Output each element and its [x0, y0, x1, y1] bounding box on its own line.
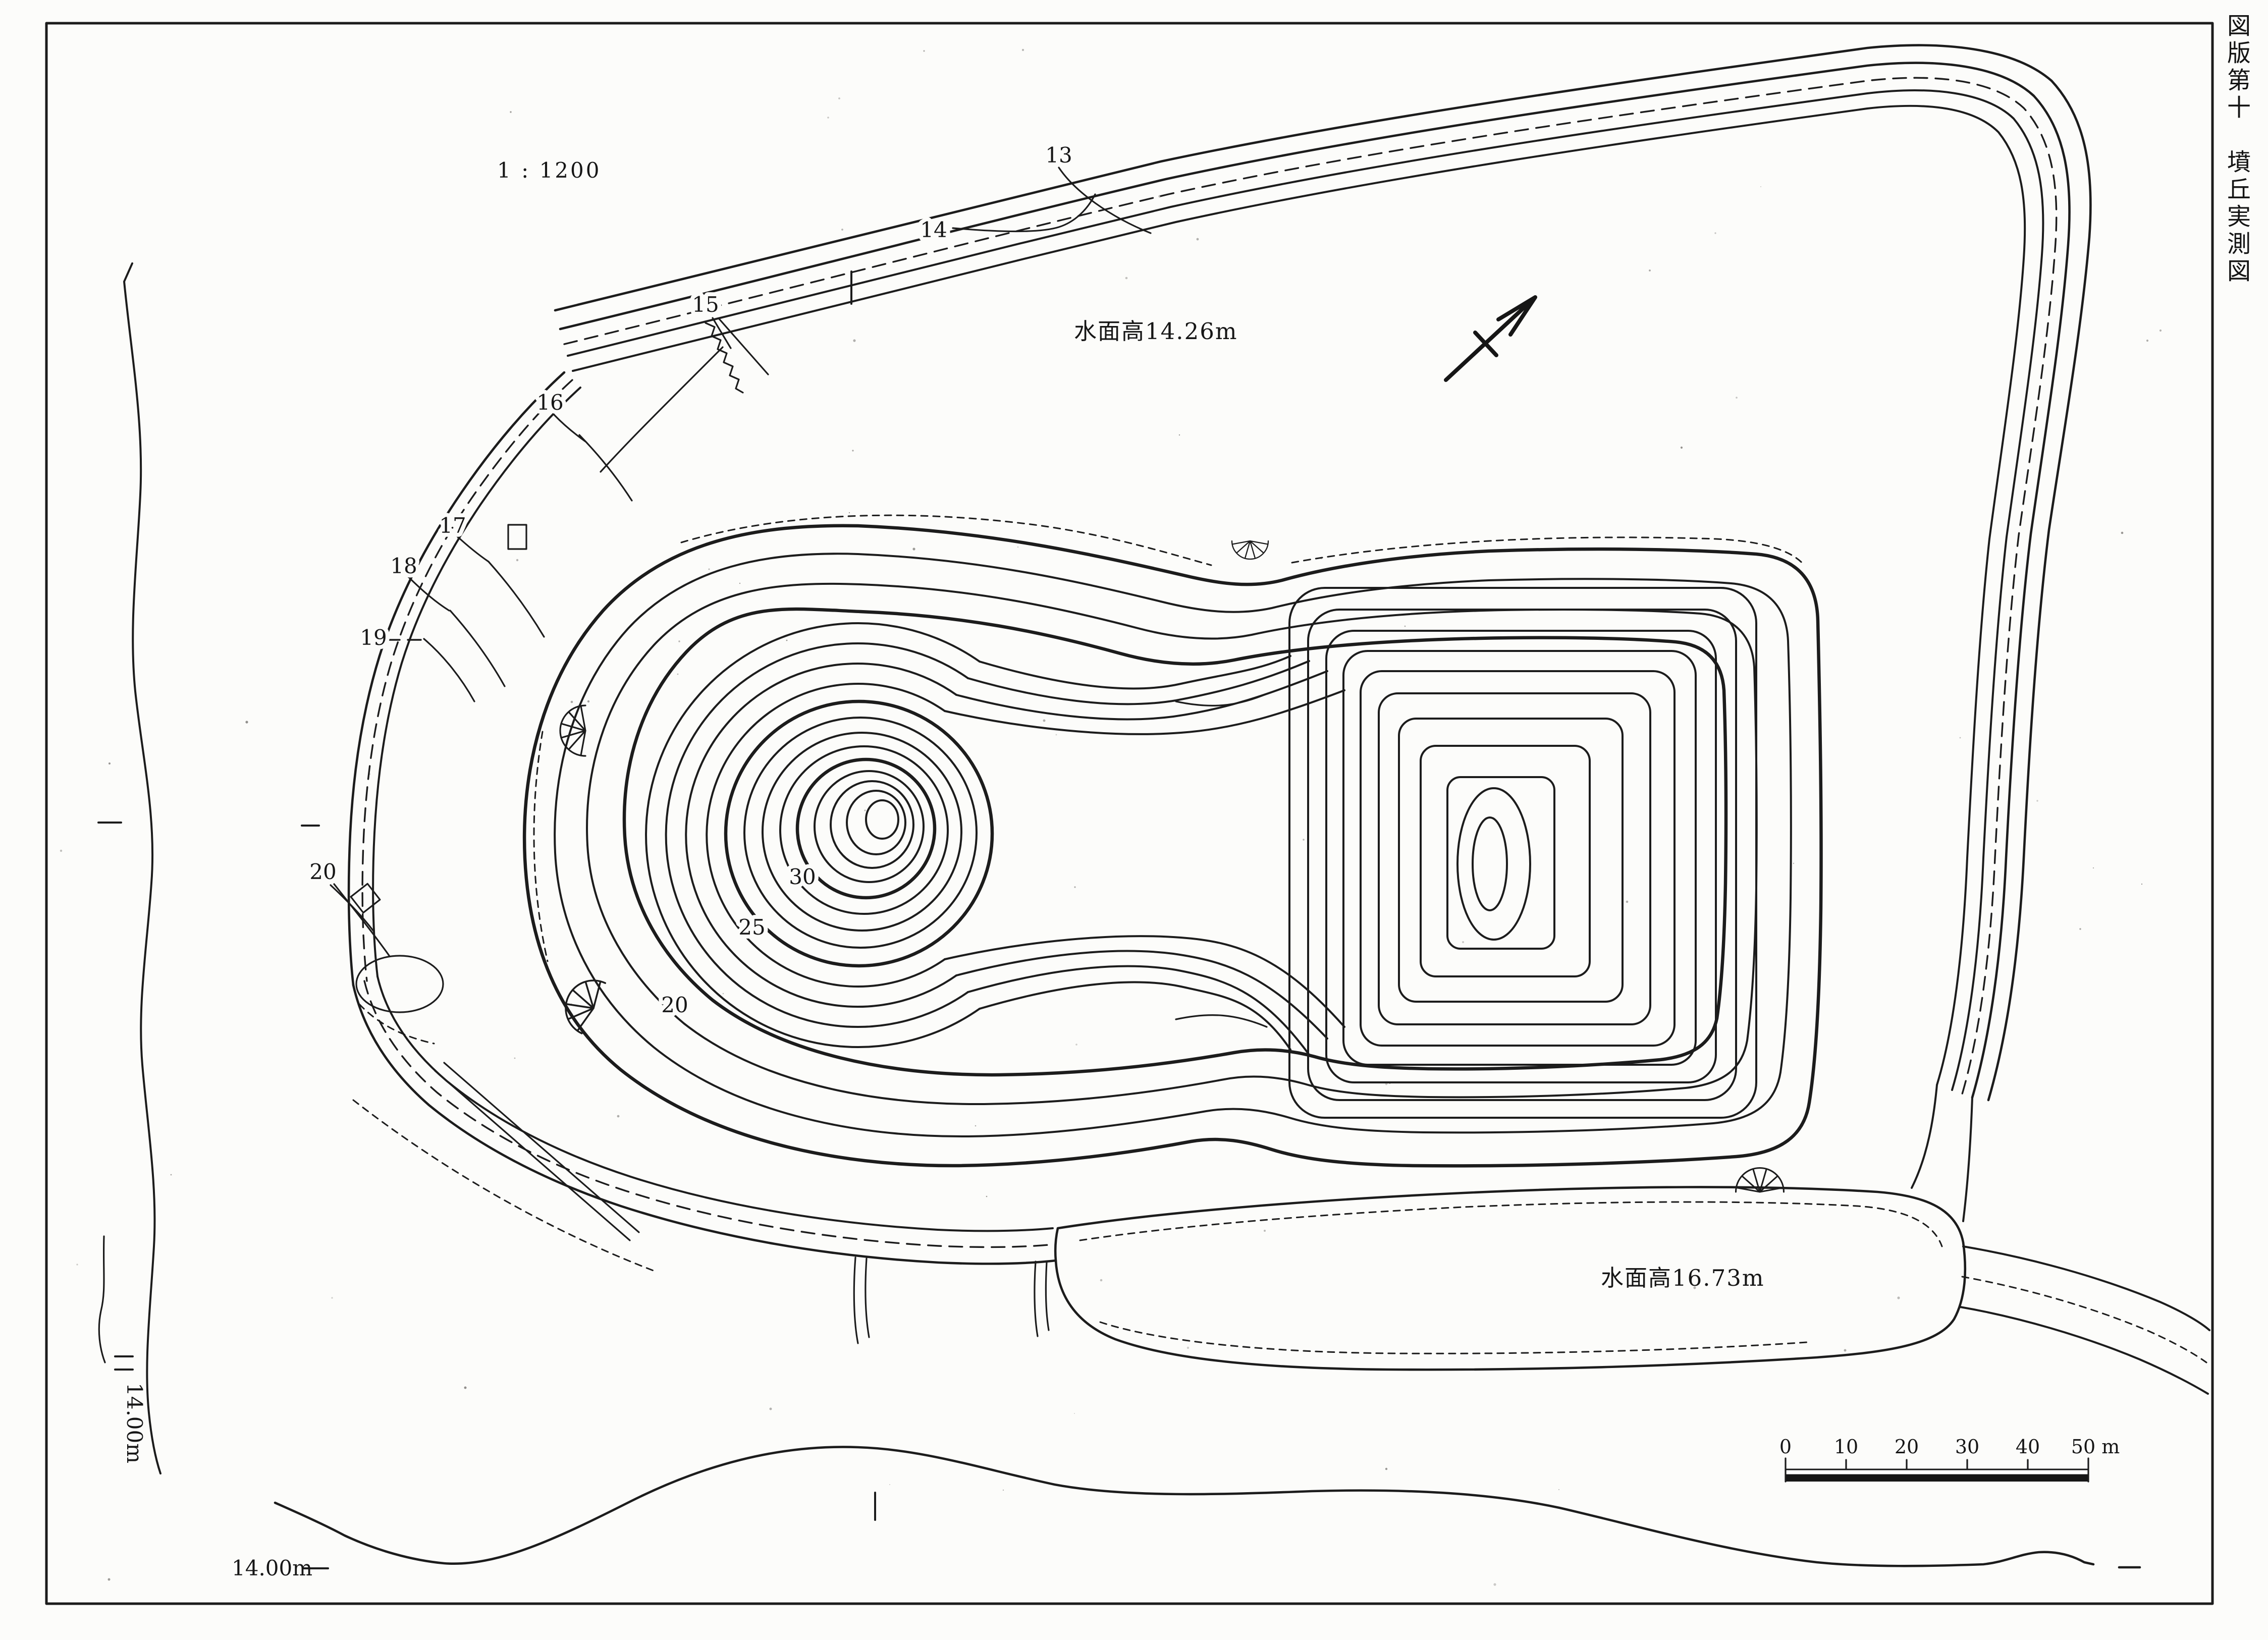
contour-label-18: 18 [390, 554, 417, 578]
contour-label-14: 14 [920, 217, 947, 242]
contour-label-17: 17 [439, 513, 466, 538]
contour-label-15: 15 [692, 292, 719, 317]
elevation-label-bottom: 14.00m [232, 1556, 312, 1580]
mound-base-outline [524, 526, 1821, 1166]
neck-saddle-contours [945, 656, 1344, 1055]
summit-contour [866, 800, 898, 839]
contour-label-30: 30 [789, 864, 816, 889]
map-scale-label: 1 : 1200 [497, 158, 601, 183]
pond-exit-channel [1960, 1246, 2209, 1394]
survey-plate-page: 0 10 20 30 40 50 m 1 : 1200 水面高14.26m 水面… [0, 0, 2268, 1640]
causeway [435, 1063, 639, 1240]
moat-dashed-waterline [534, 515, 1804, 961]
left-terrain-line [99, 263, 160, 1473]
mound-keyhole-contours [524, 526, 1821, 1166]
terrain-profile-line [275, 1447, 2140, 1567]
round-mound-contours [646, 623, 1344, 1055]
scale-bar-tick-label: 0 [1779, 1436, 1792, 1458]
outer-bank-contours [555, 45, 2090, 1221]
west-moat-pool [356, 956, 443, 1012]
survey-square-icon [508, 525, 526, 549]
south-moat-channel [353, 976, 1056, 1343]
scale-bar: 0 10 20 30 40 50 m [1779, 1436, 2120, 1482]
scale-bar-tick-label: 10 [1834, 1436, 1858, 1458]
scale-bar-tick-label: 20 [1895, 1436, 1919, 1458]
west-bank-contours [334, 319, 768, 1044]
map-canvas: 0 10 20 30 40 50 m 1 : 1200 水面高14.26m 水面… [0, 0, 2268, 1640]
front-summit-contour [1473, 817, 1507, 910]
contour-label-16: 16 [536, 390, 563, 415]
side-title: 図版第十 墳丘実測図 [2219, 13, 2254, 296]
contour-label-19: 19 [360, 625, 387, 650]
contour-label-20-edge: 20 [309, 859, 336, 884]
front-mound-contours [1289, 588, 1756, 1118]
contour-label-25: 25 [738, 915, 765, 940]
edge-contour-numbers: 13 14 15 16 17 18 19 20 [309, 143, 1072, 884]
north-arrow-icon [1446, 297, 1535, 380]
water-level-label-pond: 水面高16.73m [1601, 1265, 1765, 1291]
contour-label-13: 13 [1045, 143, 1072, 168]
elevation-label-left: 14.00m [122, 1383, 147, 1463]
survey-square-icon [351, 884, 380, 912]
water-level-label-moat: 水面高14.26m [1074, 318, 1238, 345]
map-frame [46, 23, 2212, 1604]
scale-bar-tick-label: 50 m [2071, 1436, 2120, 1458]
scale-bar-tick-label: 30 [1955, 1436, 1979, 1458]
contour-label-20-mound: 20 [661, 993, 688, 1017]
scale-bar-tick-label: 40 [2016, 1436, 2040, 1458]
